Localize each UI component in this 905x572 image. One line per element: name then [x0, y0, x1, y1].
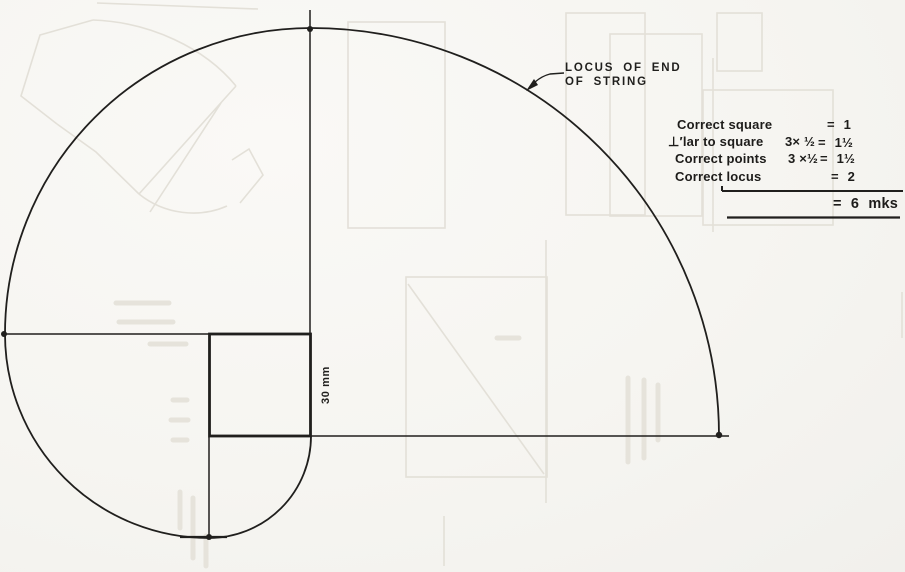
curve-label: LOCUS OF END OF STRING — [565, 61, 682, 89]
ghost-text-line — [180, 492, 206, 566]
ghost-diagonal — [408, 284, 544, 474]
ghost-text-line — [116, 303, 186, 344]
ghost-rectangle — [717, 13, 762, 71]
marks-underline-1 — [722, 186, 903, 191]
point-top — [307, 26, 313, 32]
ghost-fan-sketch — [139, 194, 227, 213]
ghost-fan-sketch — [139, 86, 236, 212]
ghost-rectangle — [348, 22, 445, 228]
involute-curve — [5, 28, 719, 538]
ghost-fan-sketch — [97, 3, 258, 9]
ghost-text-line — [628, 378, 658, 462]
curve-label-line1: LOCUS OF END — [565, 61, 682, 75]
scanned-drawing-page: LOCUS OF END OF STRING 30 mm Correct squ… — [0, 0, 905, 572]
ghost-fan-sketch — [93, 20, 236, 86]
point-end — [716, 432, 722, 438]
curve-label-line2: OF STRING — [565, 75, 682, 89]
leader-line — [535, 73, 564, 82]
ghost-text-line — [171, 400, 188, 440]
point-bottom — [206, 534, 212, 540]
dimension-label: 30 mm — [320, 355, 334, 415]
ghost-fan-sketch — [232, 149, 263, 203]
ghost-rectangle — [703, 90, 833, 225]
ghost-fan-sketch — [21, 20, 93, 124]
involute-drawing-canvas — [0, 0, 905, 572]
ghost-fan-sketch — [57, 124, 139, 194]
ghost-mirrored-text-smudges — [116, 303, 658, 566]
ghost-rectangle — [406, 277, 547, 477]
point-left — [1, 331, 7, 337]
bleed-through-ghosts — [21, 3, 902, 566]
construction-square — [210, 334, 311, 436]
